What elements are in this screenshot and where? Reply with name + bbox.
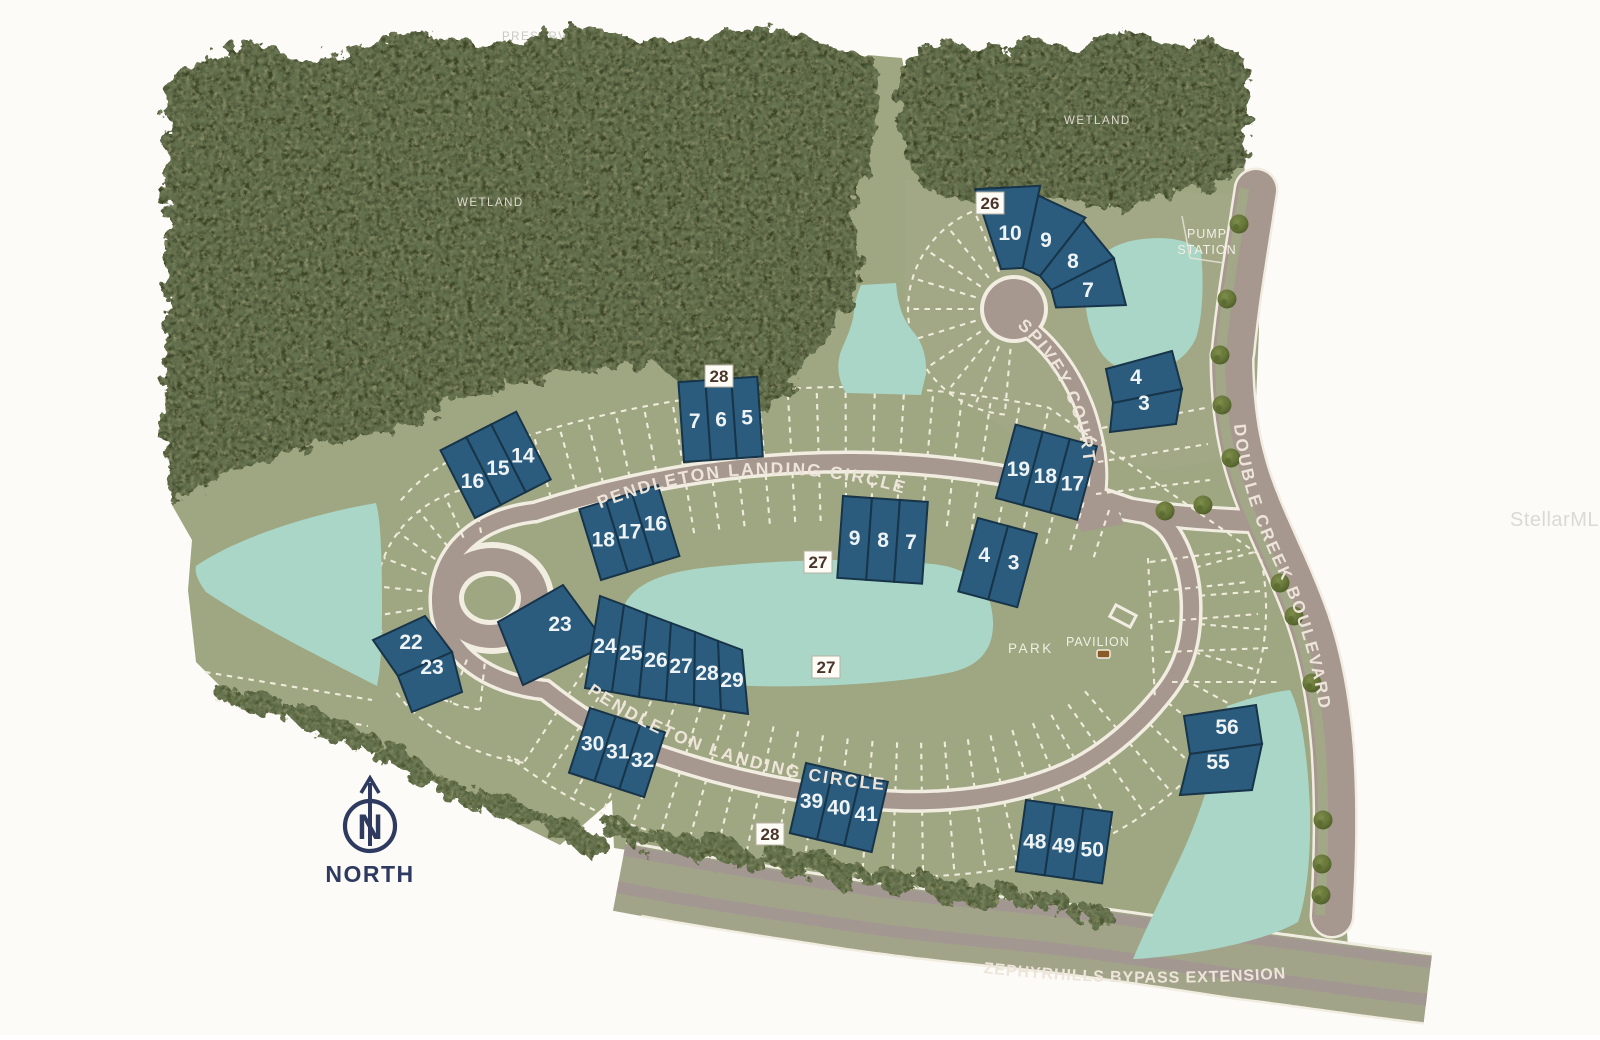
svg-text:PAVILION: PAVILION — [1066, 635, 1130, 649]
svg-text:3: 3 — [1138, 392, 1150, 415]
svg-text:7: 7 — [689, 410, 701, 433]
svg-text:24: 24 — [593, 635, 617, 658]
svg-text:56: 56 — [1215, 716, 1238, 739]
svg-text:StellarMLS: StellarMLS — [1510, 509, 1600, 531]
svg-text:14: 14 — [511, 444, 535, 467]
svg-text:49: 49 — [1052, 835, 1075, 858]
svg-text:10: 10 — [998, 222, 1021, 245]
svg-text:27: 27 — [809, 553, 828, 572]
svg-text:32: 32 — [631, 749, 654, 772]
svg-text:27: 27 — [817, 658, 836, 677]
svg-text:29: 29 — [720, 669, 743, 692]
svg-text:18: 18 — [1034, 465, 1058, 488]
svg-text:16: 16 — [644, 513, 667, 536]
svg-text:PARK: PARK — [1008, 641, 1054, 656]
svg-text:23: 23 — [548, 613, 571, 636]
svg-text:50: 50 — [1081, 839, 1104, 862]
svg-text:15: 15 — [486, 457, 510, 480]
svg-text:17: 17 — [618, 521, 641, 544]
svg-text:31: 31 — [606, 741, 630, 764]
svg-text:27: 27 — [669, 655, 692, 678]
svg-text:WETLAND: WETLAND — [1064, 115, 1131, 127]
svg-text:26: 26 — [644, 649, 667, 672]
svg-text:6: 6 — [715, 408, 727, 431]
svg-text:3: 3 — [1008, 552, 1020, 575]
svg-text:WETLAND: WETLAND — [457, 197, 524, 209]
svg-text:19: 19 — [1007, 458, 1030, 481]
svg-text:39: 39 — [800, 790, 823, 813]
svg-text:48: 48 — [1023, 831, 1047, 854]
svg-text:23: 23 — [420, 656, 443, 679]
svg-text:28: 28 — [761, 825, 780, 844]
svg-text:9: 9 — [849, 527, 861, 550]
svg-text:7: 7 — [905, 531, 917, 554]
svg-text:17: 17 — [1061, 472, 1084, 495]
svg-text:4: 4 — [978, 544, 990, 567]
svg-text:7: 7 — [1082, 279, 1094, 302]
svg-text:8: 8 — [877, 529, 889, 552]
svg-text:5: 5 — [741, 406, 753, 429]
svg-text:16: 16 — [461, 470, 484, 493]
svg-text:26: 26 — [981, 194, 1000, 213]
svg-text:8: 8 — [1067, 250, 1079, 273]
svg-text:NORTH: NORTH — [325, 861, 414, 887]
svg-text:22: 22 — [399, 631, 422, 654]
svg-text:4: 4 — [1130, 366, 1142, 389]
svg-text:STATION: STATION — [1177, 243, 1236, 257]
svg-text:28: 28 — [710, 367, 729, 386]
svg-text:30: 30 — [581, 733, 604, 756]
svg-text:N: N — [357, 808, 382, 847]
svg-text:18: 18 — [592, 529, 616, 552]
svg-text:25: 25 — [619, 642, 643, 665]
svg-text:41: 41 — [854, 803, 878, 826]
svg-text:28: 28 — [695, 662, 719, 685]
svg-text:40: 40 — [827, 797, 850, 820]
svg-text:9: 9 — [1040, 229, 1052, 252]
svg-text:55: 55 — [1206, 751, 1230, 774]
svg-text:PUMP: PUMP — [1187, 227, 1227, 241]
